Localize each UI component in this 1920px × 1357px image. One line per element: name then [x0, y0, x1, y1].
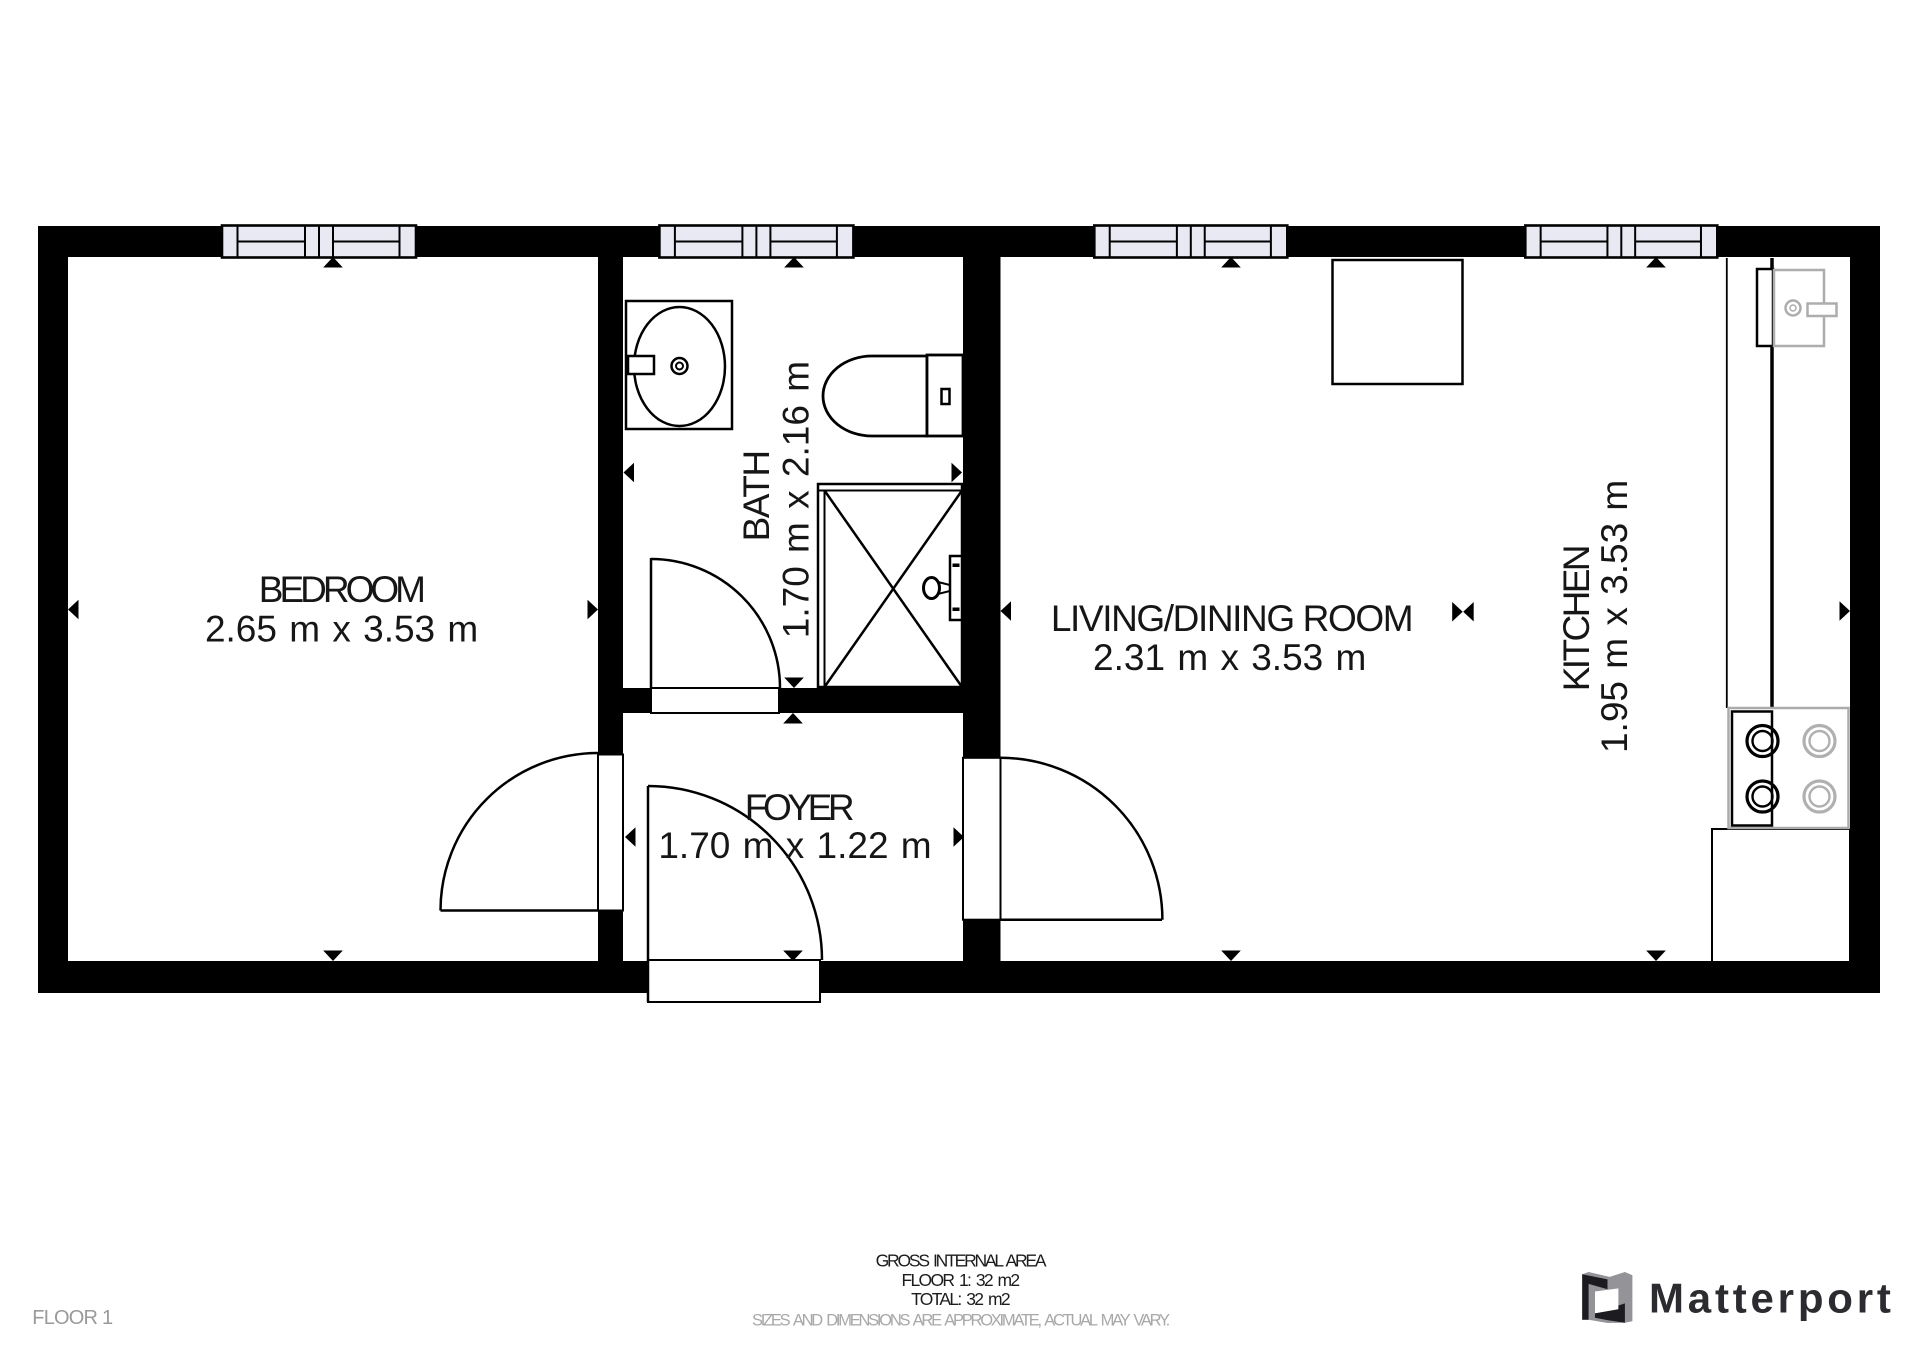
svg-text:KITCHEN: KITCHEN — [1556, 547, 1597, 691]
svg-text:FLOOR 1: 32 m2: FLOOR 1: 32 m2 — [902, 1270, 1020, 1290]
svg-text:Matterport: Matterport — [1649, 1274, 1895, 1321]
svg-text:2.65 m x 3.53 m: 2.65 m x 3.53 m — [205, 608, 478, 649]
svg-text:LIVING/DINING ROOM: LIVING/DINING ROOM — [1051, 598, 1412, 639]
svg-text:FOYER: FOYER — [745, 787, 853, 828]
svg-text:FLOOR 1: FLOOR 1 — [32, 1307, 113, 1329]
svg-text:2.31 m x 3.53 m: 2.31 m x 3.53 m — [1093, 637, 1366, 678]
svg-text:1.70 m x 1.22 m: 1.70 m x 1.22 m — [658, 825, 931, 866]
svg-text:SIZES AND DIMENSIONS ARE APPRO: SIZES AND DIMENSIONS ARE APPROXIMATE, AC… — [752, 1312, 1170, 1330]
svg-text:GROSS INTERNAL AREA: GROSS INTERNAL AREA — [876, 1250, 1047, 1270]
svg-text:1.70 m x 2.16 m: 1.70 m x 2.16 m — [776, 361, 817, 638]
svg-text:TOTAL: 32 m2: TOTAL: 32 m2 — [911, 1289, 1010, 1309]
svg-text:BEDROOM: BEDROOM — [259, 569, 423, 610]
svg-text:1.95 m x 3.53 m: 1.95 m x 3.53 m — [1594, 480, 1635, 753]
svg-text:BATH: BATH — [736, 451, 777, 541]
